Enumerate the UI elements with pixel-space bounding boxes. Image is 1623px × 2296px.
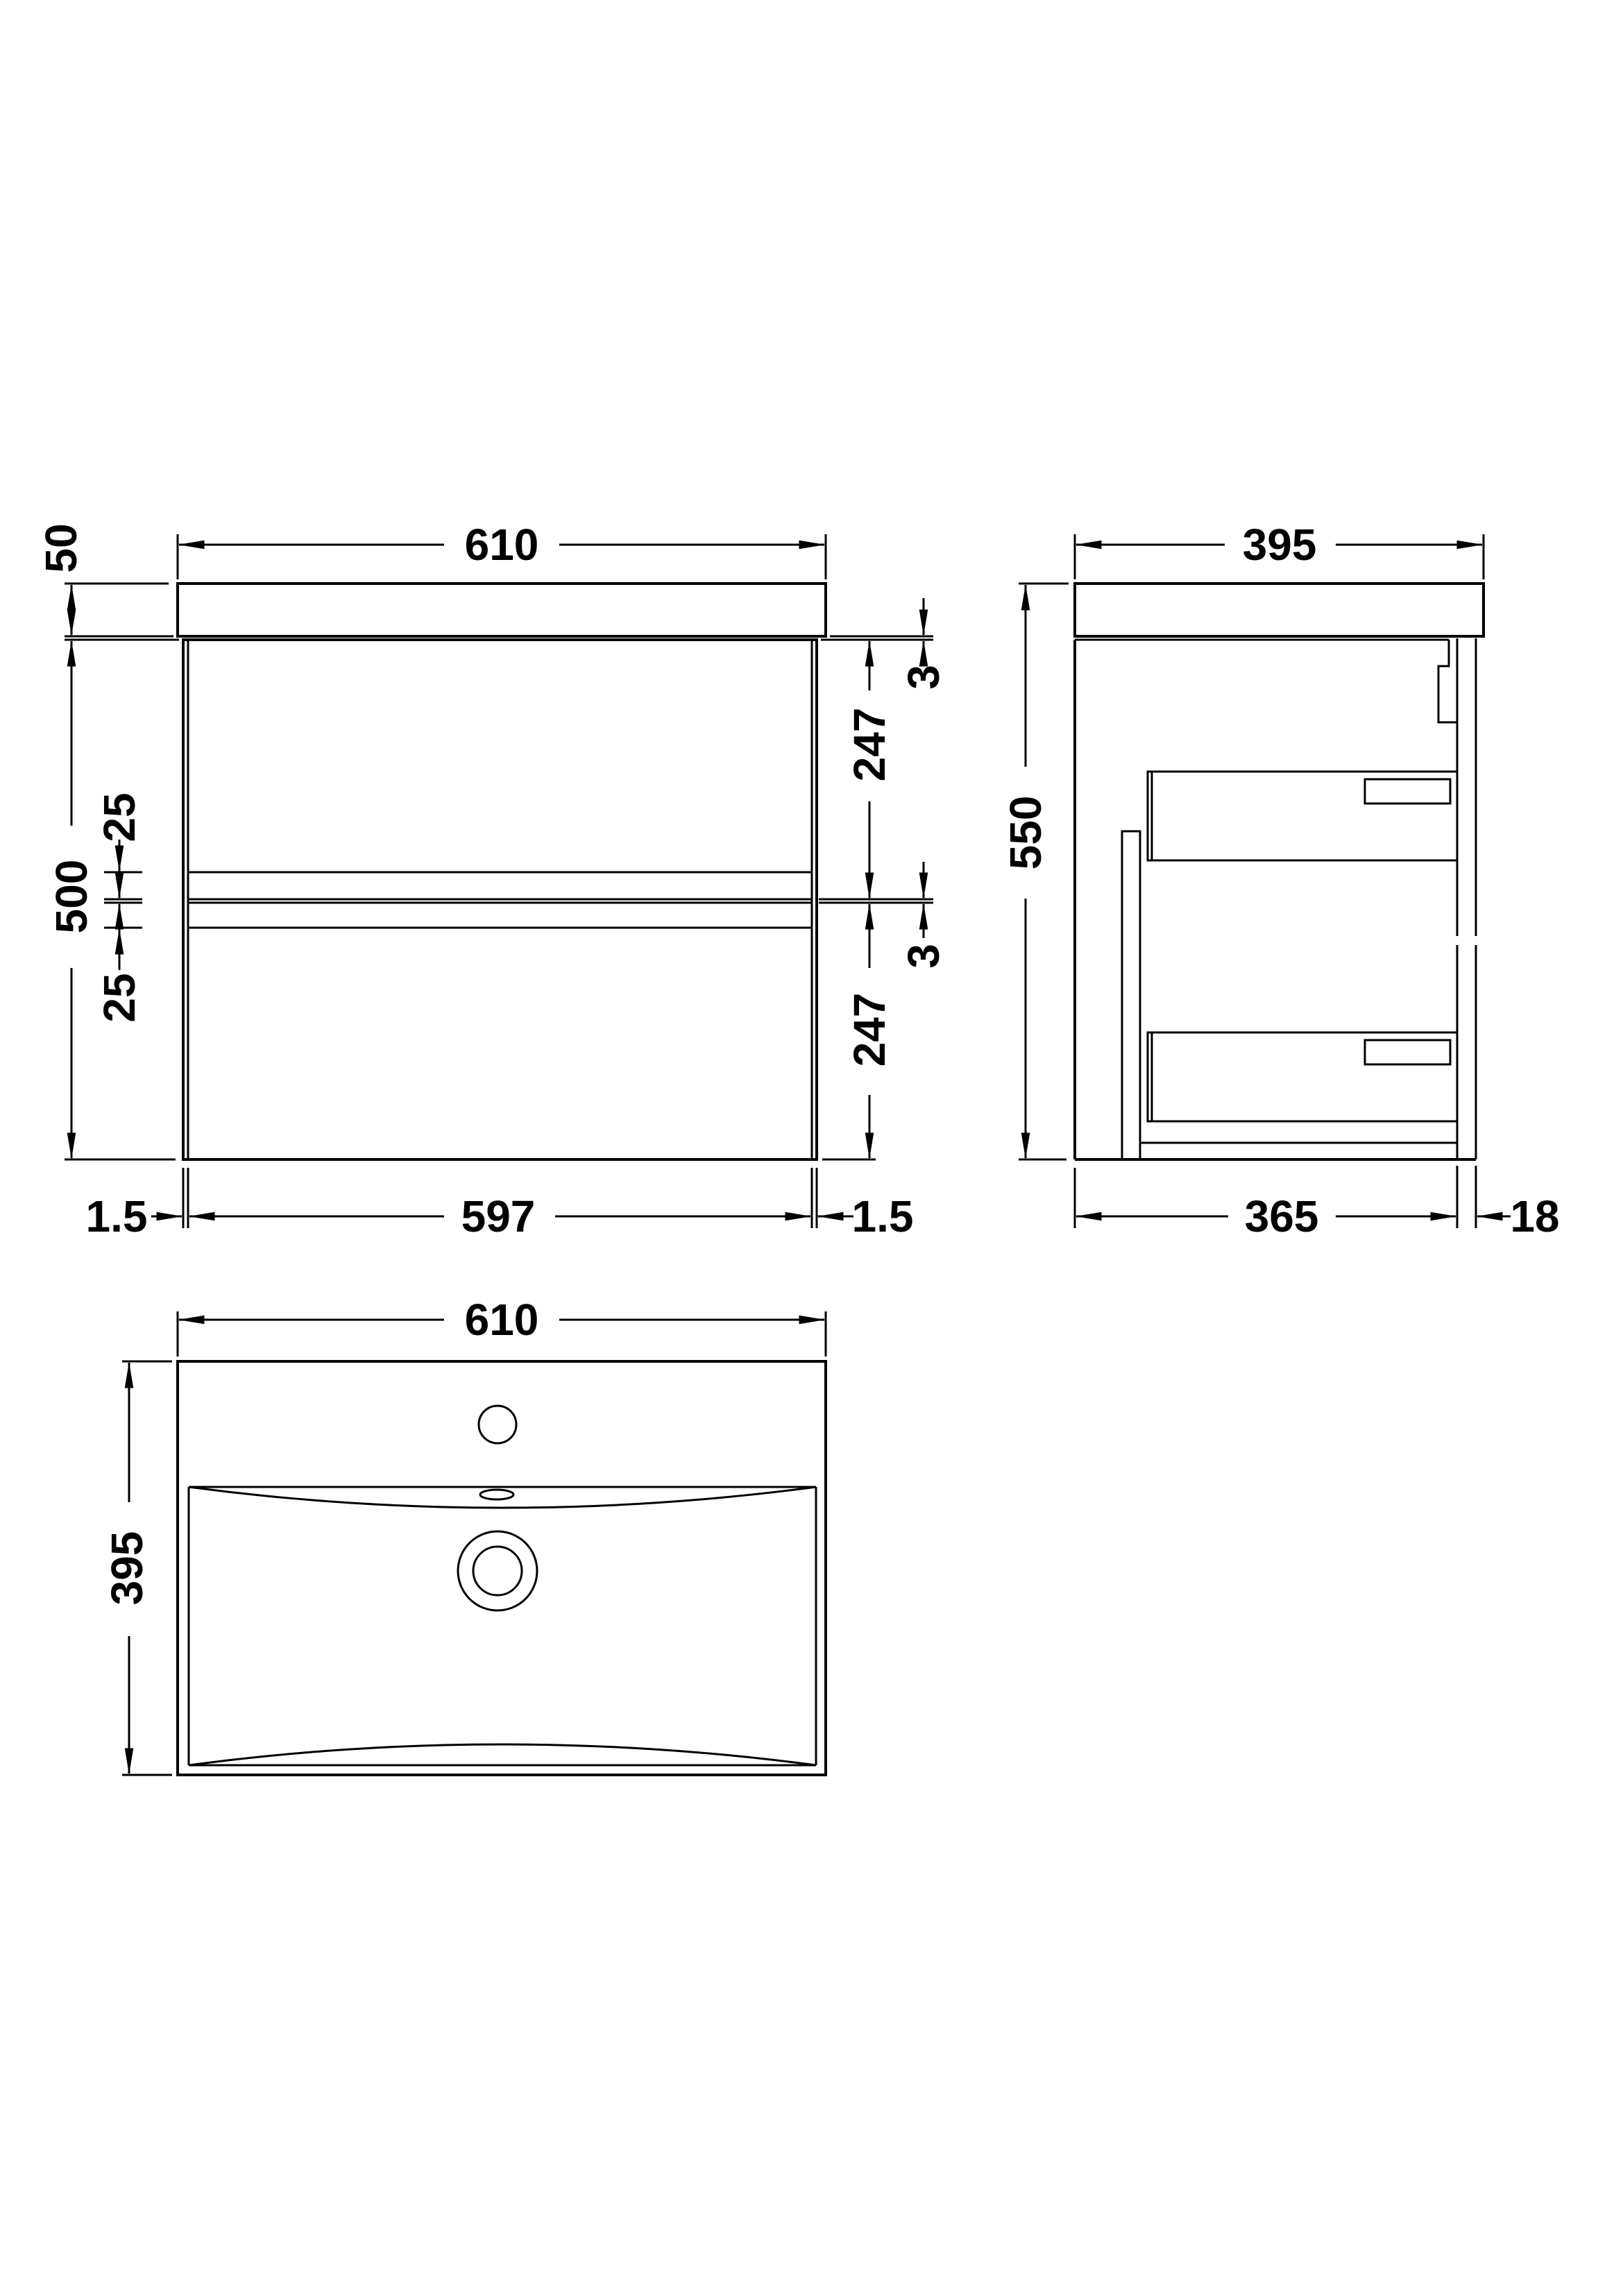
tap-hole <box>479 1406 516 1443</box>
side-front-rail <box>1122 831 1140 1159</box>
side-worktop <box>1075 584 1484 636</box>
dim-label-front-lower-gap: 25 <box>94 973 144 1022</box>
dim-label-side-overall-depth: 395 <box>1243 520 1317 570</box>
dim-label-front-upper-drawer: 247 <box>844 708 894 782</box>
dim-label-front-top-clearance: 3 <box>899 665 949 690</box>
dim-label-plan-depth: 395 <box>102 1531 152 1606</box>
dim-label-plan-width: 610 <box>465 1295 539 1345</box>
side-drawer2-box <box>1148 1032 1457 1121</box>
basin-front-wall-curve <box>189 1744 816 1765</box>
dim-label-front-right-gap: 1.5 <box>852 1191 914 1241</box>
dim-label-front-drawer-width: 597 <box>461 1191 536 1241</box>
dim-label-front-worktop-thickness: 50 <box>36 523 86 572</box>
dim-label-front-upper-gap: 25 <box>94 792 144 842</box>
dim-label-front-overall-width: 610 <box>465 520 539 570</box>
side-drawer2-runner <box>1365 1040 1450 1064</box>
side-drawer1-runner <box>1365 779 1450 803</box>
side-section-view <box>1075 584 1484 1159</box>
dim-label-front-lower-drawer: 247 <box>844 993 894 1067</box>
technical-drawing-canvas: 610 50 500 25 25 1.5 597 1.5 3 247 3 247 <box>0 0 1623 2296</box>
dim-label-side-back-rail: 18 <box>1510 1191 1559 1241</box>
dim-label-side-cabinet-depth: 365 <box>1245 1191 1319 1241</box>
dim-label-front-left-gap: 1.5 <box>86 1191 148 1241</box>
waste-outer-ring <box>458 1531 537 1610</box>
plan-dimensions: 610 395 <box>102 1295 826 1775</box>
waste-inner-ring <box>473 1547 522 1595</box>
side-drawer1-box <box>1148 772 1457 860</box>
front-elevation-view <box>178 584 826 1159</box>
dim-label-front-cabinet-height: 500 <box>46 860 96 934</box>
side-wall-bracket <box>1438 640 1457 722</box>
plan-view-basin <box>178 1361 826 1775</box>
front-worktop <box>178 584 826 636</box>
dim-label-side-overall-height: 550 <box>1001 796 1051 870</box>
overflow-slot <box>480 1490 513 1499</box>
basin-outer-rim <box>178 1361 826 1775</box>
dim-label-front-mid-clearance: 3 <box>899 944 949 969</box>
